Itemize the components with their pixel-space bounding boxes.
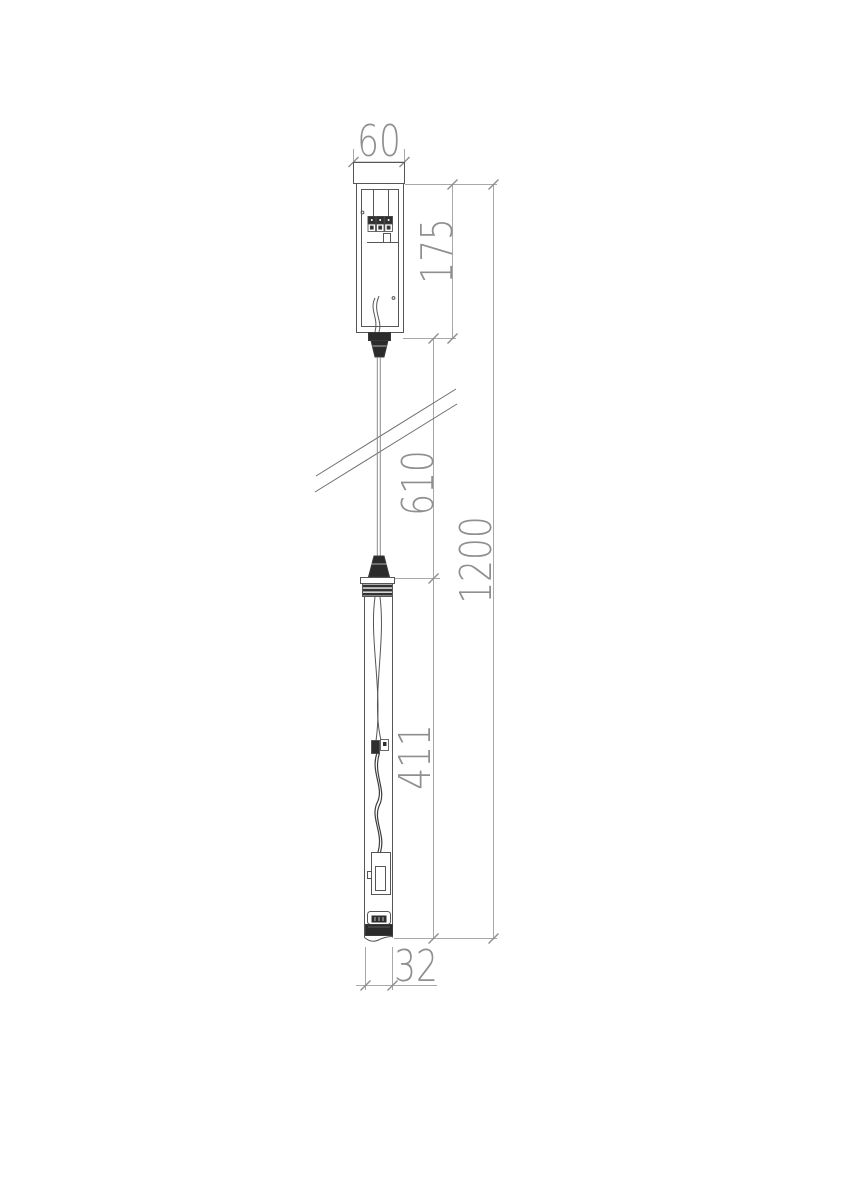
- tube-body: [365, 597, 393, 942]
- suspension-cable: [377, 357, 380, 557]
- tube-bottom-curve: [365, 937, 393, 942]
- canopy-inner-panel: [362, 190, 399, 327]
- technical-drawing: 60 175 610 1200 411 32: [0, 0, 849, 1200]
- canopy-shelf-tab: [384, 234, 391, 243]
- cord-grip-canopy: [369, 333, 391, 358]
- wire-connector: [372, 740, 389, 754]
- bottom-connector: [366, 912, 393, 936]
- cord-grip-tube: [369, 556, 390, 577]
- tube-cap-flange: [361, 578, 395, 584]
- canopy-body: [357, 184, 404, 333]
- canopy-group: [354, 163, 405, 333]
- dim-32-label: 32: [394, 945, 438, 989]
- screw-dot: [361, 211, 364, 214]
- dim-411-label: 411: [394, 724, 438, 790]
- screw-dot: [392, 297, 395, 300]
- dim-610-label: 610: [397, 450, 441, 516]
- dim-175-label: 175: [416, 218, 460, 284]
- tube-cap: [361, 578, 395, 597]
- twisted-wire: [375, 753, 382, 852]
- tube-internal-wires: [373, 597, 381, 741]
- terminal-block: [368, 217, 392, 232]
- lamp-drawing-svg: [0, 0, 849, 1200]
- dim-60-label: 60: [357, 120, 401, 164]
- switch-component: [368, 853, 391, 895]
- dim-1200-label: 1200: [455, 516, 499, 603]
